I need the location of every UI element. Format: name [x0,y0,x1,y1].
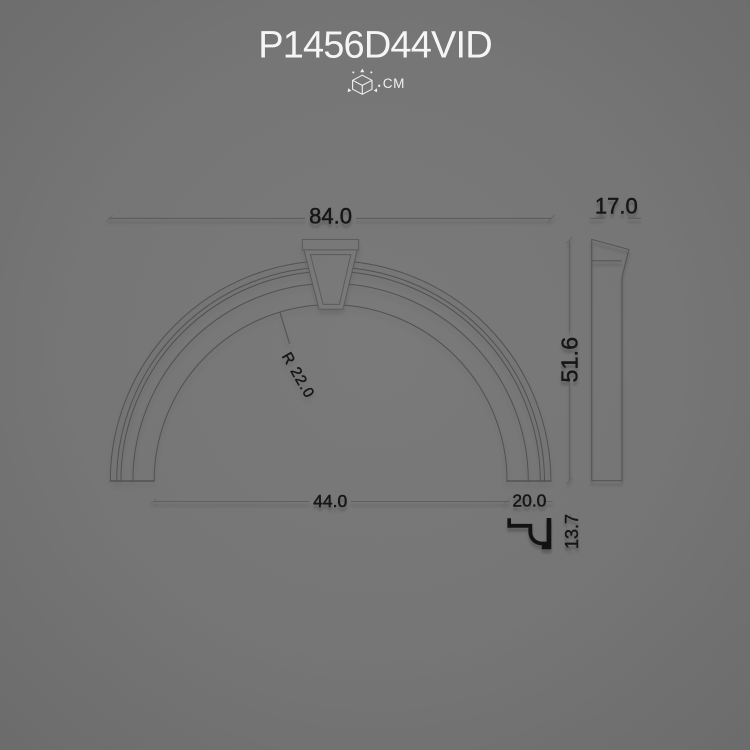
svg-text:17.0: 17.0 [595,194,638,219]
svg-text:13.7: 13.7 [562,514,582,549]
svg-text:51.6: 51.6 [556,337,582,383]
svg-text:CM: CM [383,76,405,91]
svg-text:44.0: 44.0 [313,491,347,511]
svg-text:20.0: 20.0 [512,490,546,510]
svg-text:84.0: 84.0 [309,203,352,228]
svg-text:P1456D44VID: P1456D44VID [258,25,492,67]
